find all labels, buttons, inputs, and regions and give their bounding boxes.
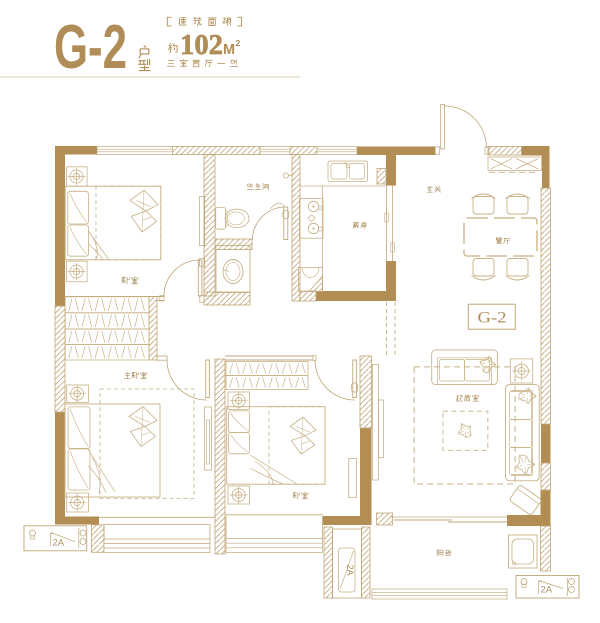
svg-text:G-2: G-2	[478, 310, 507, 327]
svg-text:2A: 2A	[345, 564, 355, 575]
svg-text:M: M	[223, 42, 235, 58]
svg-text:2: 2	[236, 38, 241, 48]
svg-text:2A: 2A	[53, 538, 65, 549]
svg-text:G-2: G-2	[54, 13, 127, 82]
svg-text:102: 102	[180, 29, 223, 61]
svg-text:2A: 2A	[541, 585, 553, 596]
